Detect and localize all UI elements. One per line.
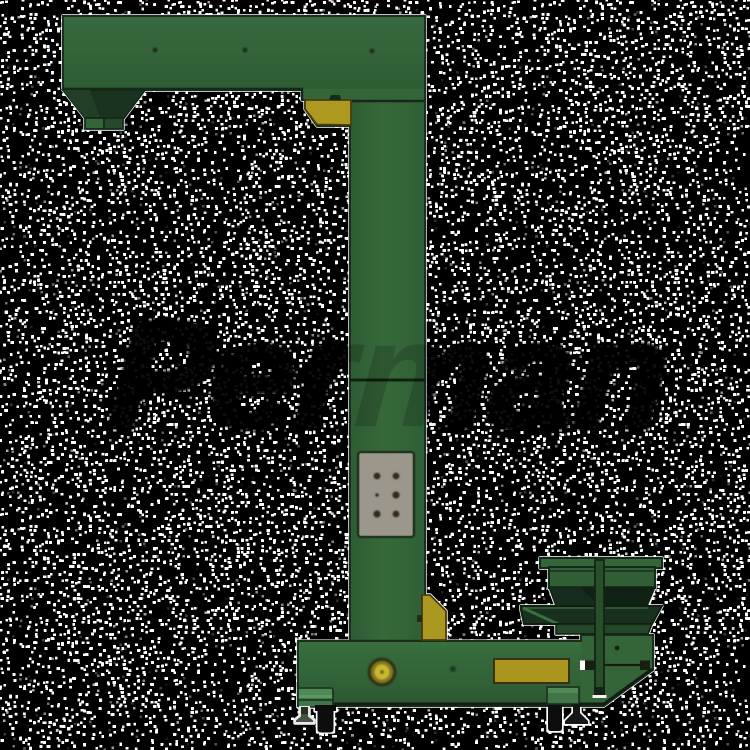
svg-text:Perman: Perman bbox=[105, 289, 674, 459]
